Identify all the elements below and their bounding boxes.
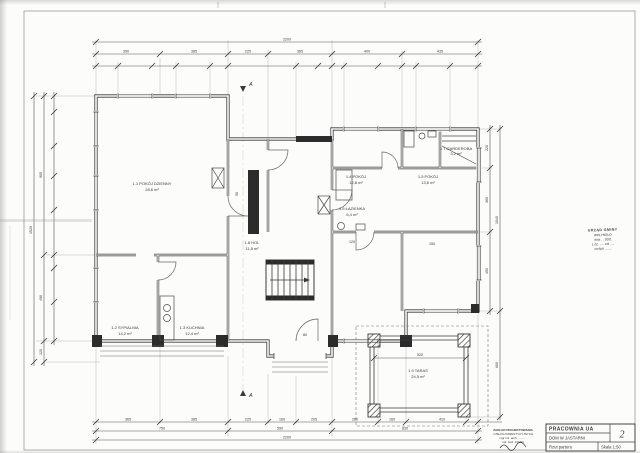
drawing-sheet: A A 1.1 POKÓJ DZIENNY 28,6 m² 1.2 SYPIAL…	[0, 0, 640, 453]
porch-steps	[272, 362, 328, 372]
room-label: 1.3 KUCHNIA	[180, 325, 205, 330]
window	[476, 245, 481, 281]
room-area: 13,6 m²	[421, 180, 435, 185]
dim: 260	[352, 418, 358, 422]
dim: 410	[439, 418, 445, 422]
garden-steps	[100, 346, 224, 356]
bottom-chains	[92, 422, 502, 440]
border-frame	[24, 11, 635, 450]
dim: 905	[39, 172, 43, 178]
dim: 120	[349, 240, 355, 244]
office-stamp-line: URZĄD GMINY	[588, 227, 618, 232]
dim: 600	[495, 362, 499, 368]
drawing-title: Rzut parteru	[549, 445, 573, 450]
section-arrow-bottom	[240, 390, 246, 396]
studio-name: PRACOWNIA UA	[549, 427, 594, 433]
window	[175, 93, 211, 98]
room-area: 6,4 m²	[346, 212, 358, 217]
room-area: 12,4 m²	[185, 331, 199, 336]
scan-shadow-left	[0, 0, 7, 453]
dim: 2200	[283, 38, 291, 42]
section-letter-top: A	[248, 82, 253, 88]
dim: 385	[191, 418, 197, 422]
sink	[164, 315, 171, 322]
dim: 120	[39, 349, 43, 355]
room-label: 1.4 POKÓJ	[346, 174, 366, 179]
window	[93, 267, 98, 303]
window	[93, 175, 98, 211]
window	[117, 93, 153, 98]
window	[476, 147, 481, 183]
door-arc	[296, 319, 318, 341]
sink	[164, 305, 171, 312]
room-label: 1.1 POKÓJ DZIENNY	[133, 181, 172, 186]
door-arc	[268, 150, 288, 170]
window	[93, 111, 98, 147]
room-area: 14,2 m²	[118, 331, 132, 336]
room-label: 1.6 ŁAZIENKA	[339, 206, 365, 211]
office-stamp-line: podpis ........	[595, 246, 613, 251]
interior-wall-core	[96, 129, 478, 341]
dim: 160	[279, 418, 285, 422]
post	[458, 404, 470, 417]
room-area: 28,6 m²	[145, 187, 159, 192]
dim: 365	[297, 50, 303, 54]
dim: 225	[245, 50, 251, 54]
architect-stamp: ZAKŁAD PROJEKTOWANIA i USŁUG INWESTYCYJN…	[493, 428, 534, 451]
dim: 150	[429, 242, 435, 246]
dim: 520	[417, 353, 423, 357]
shower	[404, 131, 414, 147]
dim: 750	[159, 427, 165, 431]
exterior-steps	[100, 346, 328, 372]
section-arrow-top	[240, 86, 246, 92]
dim: 80	[303, 333, 307, 337]
room-label: 1.2 SYPIALNIA	[111, 325, 139, 330]
washbasin	[419, 133, 425, 139]
washbasin	[356, 224, 365, 230]
washbasin	[428, 131, 436, 137]
exterior-wall-core	[96, 96, 478, 356]
scan-shadow-top	[0, 0, 640, 5]
room-label: 1.8 HOL	[245, 240, 261, 245]
exterior-wall-outer	[96, 96, 478, 356]
window	[423, 308, 459, 313]
dim: 435	[437, 50, 443, 54]
post	[458, 334, 470, 347]
dim: 830	[402, 427, 408, 431]
dim: 1520	[29, 226, 33, 234]
dimension-ticks	[31, 39, 503, 443]
drawing-scale: Skala 1:50	[601, 445, 621, 450]
top-chains	[92, 42, 482, 66]
room-area: 11,8 m²	[245, 246, 259, 251]
dim: 90	[235, 192, 239, 196]
room-label: 1.5 POKÓJ	[418, 174, 438, 179]
left-chains	[34, 92, 54, 366]
office-stamp: URZĄD GMINY WPŁYNĘŁO dnia . . 2001 L.dz.…	[588, 227, 619, 251]
door-arc	[382, 152, 398, 168]
dim: 365	[485, 197, 489, 203]
dim: 490	[39, 295, 43, 301]
dim: 220	[485, 145, 489, 151]
window	[343, 126, 379, 131]
walls	[96, 96, 478, 356]
dim: 225	[245, 418, 251, 422]
project-name: DOM W JASTARNI	[549, 436, 585, 441]
porch-opening	[274, 353, 326, 358]
dim: 400	[364, 50, 370, 54]
dim: 450	[485, 268, 489, 274]
section-letter-bottom: A	[248, 393, 253, 399]
room-area: 12,8 m²	[349, 180, 363, 185]
dim: 160	[389, 418, 395, 422]
dim: 205	[311, 418, 317, 422]
scan-crease	[0, 219, 92, 222]
kitchen-counter	[160, 296, 174, 340]
dimension-numbers: 2200 390 385 225 365 400 435 365 385 225…	[29, 38, 499, 440]
door-arc	[228, 196, 248, 216]
right-chains	[490, 125, 500, 420]
room-label: 1.9 TARAS	[408, 368, 428, 373]
dim: 2200	[283, 436, 291, 440]
dim: 365	[125, 418, 131, 422]
post	[368, 404, 380, 417]
sheet-number: 2	[620, 430, 625, 441]
door-arc	[158, 262, 176, 280]
post	[368, 334, 380, 347]
dim: 1040	[495, 216, 499, 224]
title-block: PRACOWNIA UA DOM W JASTARNI 2 Rzut parte…	[546, 424, 635, 451]
stairs	[266, 260, 314, 300]
interior-wall-outer	[96, 129, 478, 341]
dim: 385	[191, 50, 197, 54]
floor-plan-drawing: A A 1.1 POKÓJ DZIENNY 28,6 m² 1.2 SYPIAL…	[0, 0, 640, 453]
room-area: 24,5 m²	[411, 374, 425, 379]
door-arc	[356, 232, 374, 250]
dim: 390	[123, 50, 129, 54]
room-area: 3,2 m²	[450, 151, 462, 156]
toilet	[338, 223, 345, 230]
dim: 590	[277, 427, 283, 431]
